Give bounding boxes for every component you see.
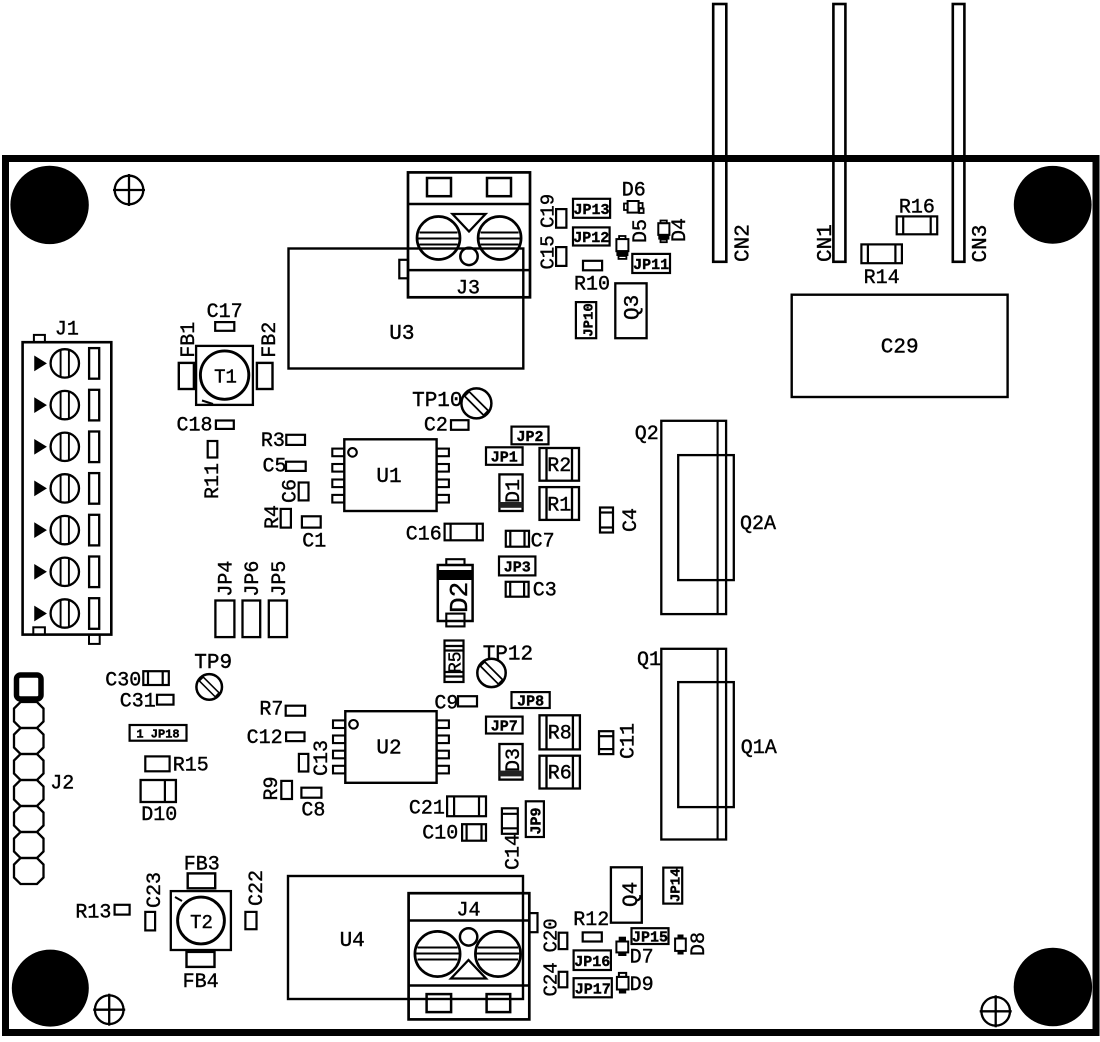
svg-text:J4: J4 [456, 900, 480, 923]
svg-text:JP14: JP14 [669, 868, 685, 902]
svg-text:C2: C2 [424, 415, 448, 438]
svg-text:JP10: JP10 [582, 303, 598, 337]
svg-text:R14: R14 [864, 267, 900, 290]
svg-text:R1: R1 [547, 495, 571, 518]
svg-text:R10: R10 [574, 273, 610, 296]
svg-text:TP9: TP9 [194, 652, 232, 675]
svg-text:C24: C24 [541, 962, 563, 996]
svg-text:CN1: CN1 [815, 224, 838, 262]
svg-text:R12: R12 [573, 909, 609, 932]
svg-text:FB3: FB3 [184, 854, 220, 877]
svg-text:C15: C15 [538, 235, 560, 269]
svg-text:1 JP18: 1 JP18 [136, 727, 179, 741]
svg-text:JP12: JP12 [573, 230, 609, 247]
svg-text:C9: C9 [434, 693, 458, 716]
svg-text:FB2: FB2 [259, 322, 282, 358]
svg-text:D6: D6 [622, 180, 646, 203]
svg-text:U3: U3 [389, 323, 414, 346]
svg-text:Q2A: Q2A [740, 513, 776, 536]
svg-text:D5: D5 [630, 219, 653, 243]
svg-text:R8: R8 [548, 723, 572, 746]
svg-text:JP17: JP17 [575, 981, 611, 998]
svg-text:C23: C23 [144, 872, 167, 908]
svg-text:JP11: JP11 [633, 257, 669, 274]
svg-text:FB1: FB1 [178, 322, 201, 358]
svg-text:D1: D1 [503, 479, 526, 503]
svg-text:C22: C22 [246, 870, 269, 906]
svg-text:J3: J3 [456, 278, 480, 301]
svg-text:C7: C7 [531, 531, 555, 554]
svg-text:C8: C8 [301, 800, 325, 823]
svg-text:Q3: Q3 [622, 295, 645, 320]
svg-text:U1: U1 [376, 466, 401, 489]
svg-text:T2: T2 [190, 912, 213, 934]
svg-text:FB4: FB4 [183, 971, 219, 994]
svg-text:D9: D9 [630, 974, 654, 997]
svg-text:C17: C17 [207, 301, 243, 324]
svg-text:JP8: JP8 [517, 694, 544, 711]
svg-text:C3: C3 [533, 580, 557, 603]
svg-text:R13: R13 [75, 902, 111, 925]
svg-text:J1: J1 [55, 319, 79, 342]
svg-text:TP12: TP12 [483, 644, 533, 667]
svg-text:C30: C30 [105, 670, 141, 693]
svg-text:R15: R15 [173, 755, 209, 778]
svg-text:JP13: JP13 [573, 202, 609, 219]
svg-text:R16: R16 [899, 197, 935, 220]
svg-text:D2: D2 [445, 582, 475, 613]
svg-text:C11: C11 [618, 723, 641, 759]
svg-text:Q2: Q2 [635, 423, 659, 446]
svg-text:Q1: Q1 [637, 649, 661, 672]
svg-text:CN2: CN2 [733, 224, 756, 262]
svg-text:R3: R3 [261, 430, 285, 453]
svg-text:C21: C21 [409, 798, 445, 821]
svg-text:R2: R2 [547, 455, 571, 478]
svg-text:C14: C14 [503, 834, 526, 870]
svg-text:J2: J2 [50, 773, 74, 796]
svg-text:JP7: JP7 [491, 719, 518, 736]
svg-text:JP4: JP4 [216, 561, 239, 597]
svg-text:C12: C12 [247, 727, 283, 750]
svg-text:T1: T1 [214, 367, 237, 389]
svg-text:JP6: JP6 [242, 561, 265, 597]
svg-text:R11: R11 [202, 463, 225, 499]
svg-text:JP1: JP1 [491, 450, 518, 467]
svg-text:C13: C13 [311, 740, 334, 776]
svg-text:JP16: JP16 [574, 954, 610, 971]
svg-text:C4: C4 [620, 508, 643, 532]
svg-text:R5: R5 [447, 651, 467, 673]
svg-text:C31: C31 [120, 691, 156, 714]
svg-text:D10: D10 [141, 804, 177, 827]
svg-text:U2: U2 [376, 738, 401, 761]
svg-text:JP9: JP9 [529, 807, 546, 834]
svg-text:R7: R7 [259, 699, 283, 722]
svg-text:JP2: JP2 [516, 429, 543, 446]
svg-text:Q4: Q4 [621, 882, 644, 907]
svg-text:C1: C1 [302, 531, 326, 554]
svg-text:U4: U4 [340, 930, 365, 953]
svg-text:C29: C29 [881, 337, 919, 360]
svg-text:JP5: JP5 [269, 561, 292, 597]
svg-text:C5: C5 [263, 456, 287, 479]
svg-text:D4: D4 [669, 218, 692, 242]
svg-text:D8: D8 [688, 932, 711, 956]
svg-text:C20: C20 [541, 918, 563, 952]
svg-text:R6: R6 [548, 763, 572, 786]
svg-text:C19: C19 [538, 194, 560, 228]
svg-text:CN3: CN3 [970, 225, 993, 263]
svg-text:C18: C18 [177, 415, 213, 438]
svg-text:JP3: JP3 [504, 560, 531, 577]
svg-text:C10: C10 [422, 823, 458, 846]
svg-text:C16: C16 [406, 524, 442, 547]
svg-text:Q1A: Q1A [741, 737, 777, 760]
svg-text:D7: D7 [630, 947, 654, 970]
svg-text:D3: D3 [503, 748, 526, 772]
svg-text:TP10: TP10 [412, 390, 462, 413]
svg-text:JP15: JP15 [632, 930, 668, 947]
